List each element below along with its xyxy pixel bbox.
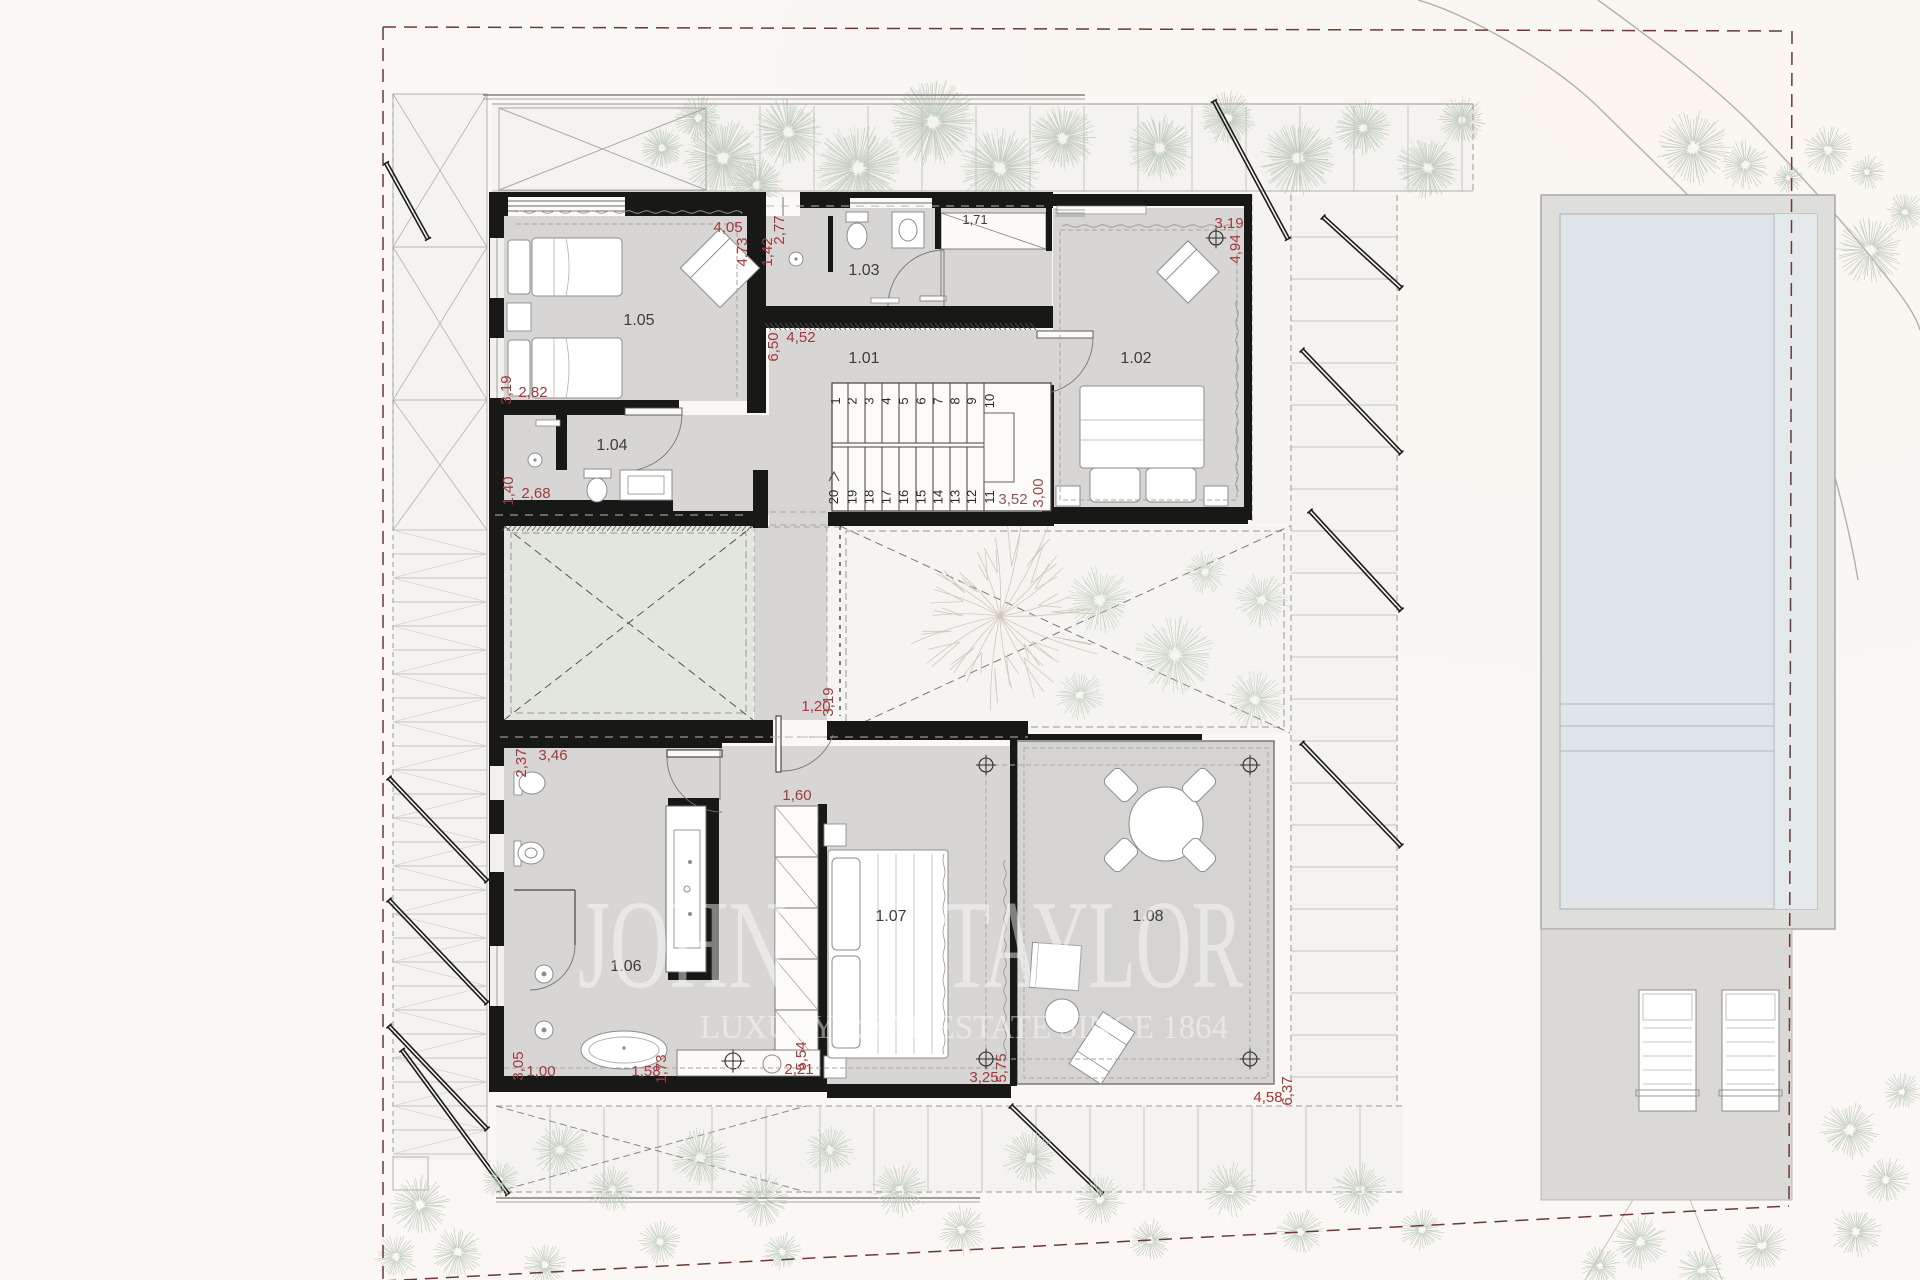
svg-text:1: 1 (828, 397, 843, 404)
svg-text:1.07: 1.07 (875, 908, 906, 925)
svg-text:4,73: 4,73 (734, 237, 751, 266)
svg-text:JOHN: JOHN (578, 876, 788, 1015)
svg-text:5: 5 (896, 397, 911, 404)
svg-text:9: 9 (964, 397, 979, 404)
svg-text:1.05: 1.05 (623, 312, 654, 329)
svg-text:8: 8 (948, 397, 963, 404)
svg-text:3,19: 3,19 (820, 687, 837, 716)
svg-text:1,71: 1,71 (962, 212, 987, 227)
svg-text:1,40: 1,40 (500, 476, 517, 505)
svg-text:3,00: 3,00 (1030, 478, 1047, 507)
svg-text:10: 10 (982, 394, 997, 408)
svg-text:5,75: 5,75 (993, 1053, 1010, 1082)
svg-text:4,52: 4,52 (786, 329, 815, 346)
svg-text:1,42: 1,42 (759, 237, 776, 266)
svg-text:TAYLOR: TAYLOR (943, 876, 1243, 1015)
svg-text:1,00: 1,00 (526, 1063, 555, 1080)
svg-text:3,46: 3,46 (538, 747, 567, 764)
svg-text:4: 4 (879, 397, 894, 404)
svg-text:3,05: 3,05 (510, 1051, 527, 1080)
svg-text:3: 3 (862, 397, 877, 404)
svg-text:2,21: 2,21 (784, 1061, 813, 1078)
svg-text:6,50: 6,50 (765, 332, 782, 361)
svg-text:1,73: 1,73 (653, 1054, 670, 1083)
svg-text:LUXURY REAL ESTATE SINCE 1864: LUXURY REAL ESTATE SINCE 1864 (700, 1009, 1228, 1046)
svg-text:11: 11 (982, 490, 997, 504)
svg-text:16: 16 (896, 490, 911, 504)
svg-text:1.04: 1.04 (596, 437, 627, 454)
svg-text:2: 2 (845, 397, 860, 404)
svg-text:19: 19 (845, 490, 860, 504)
svg-text:3,52: 3,52 (998, 491, 1027, 508)
svg-text:15: 15 (914, 490, 929, 504)
svg-text:18: 18 (862, 490, 877, 504)
svg-text:14: 14 (931, 490, 946, 504)
svg-text:6: 6 (914, 397, 929, 404)
svg-text:20: 20 (826, 490, 841, 504)
svg-text:12: 12 (964, 490, 979, 504)
svg-text:1.01: 1.01 (848, 350, 879, 367)
svg-text:7: 7 (931, 397, 946, 404)
svg-text:1.03: 1.03 (848, 262, 879, 279)
svg-text:2,68: 2,68 (521, 485, 550, 502)
svg-text:3,19: 3,19 (1214, 215, 1243, 232)
svg-text:17: 17 (879, 490, 894, 504)
svg-text:6,37: 6,37 (1279, 1076, 1296, 1105)
svg-text:2,82: 2,82 (518, 384, 547, 401)
svg-text:2,37: 2,37 (513, 748, 530, 777)
svg-text:13: 13 (948, 490, 963, 504)
svg-text:4,94: 4,94 (1227, 234, 1244, 263)
svg-text:1,60: 1,60 (782, 787, 811, 804)
svg-text:4,05: 4,05 (713, 219, 742, 236)
svg-text:1.02: 1.02 (1120, 350, 1151, 367)
svg-text:3,19: 3,19 (498, 375, 515, 404)
